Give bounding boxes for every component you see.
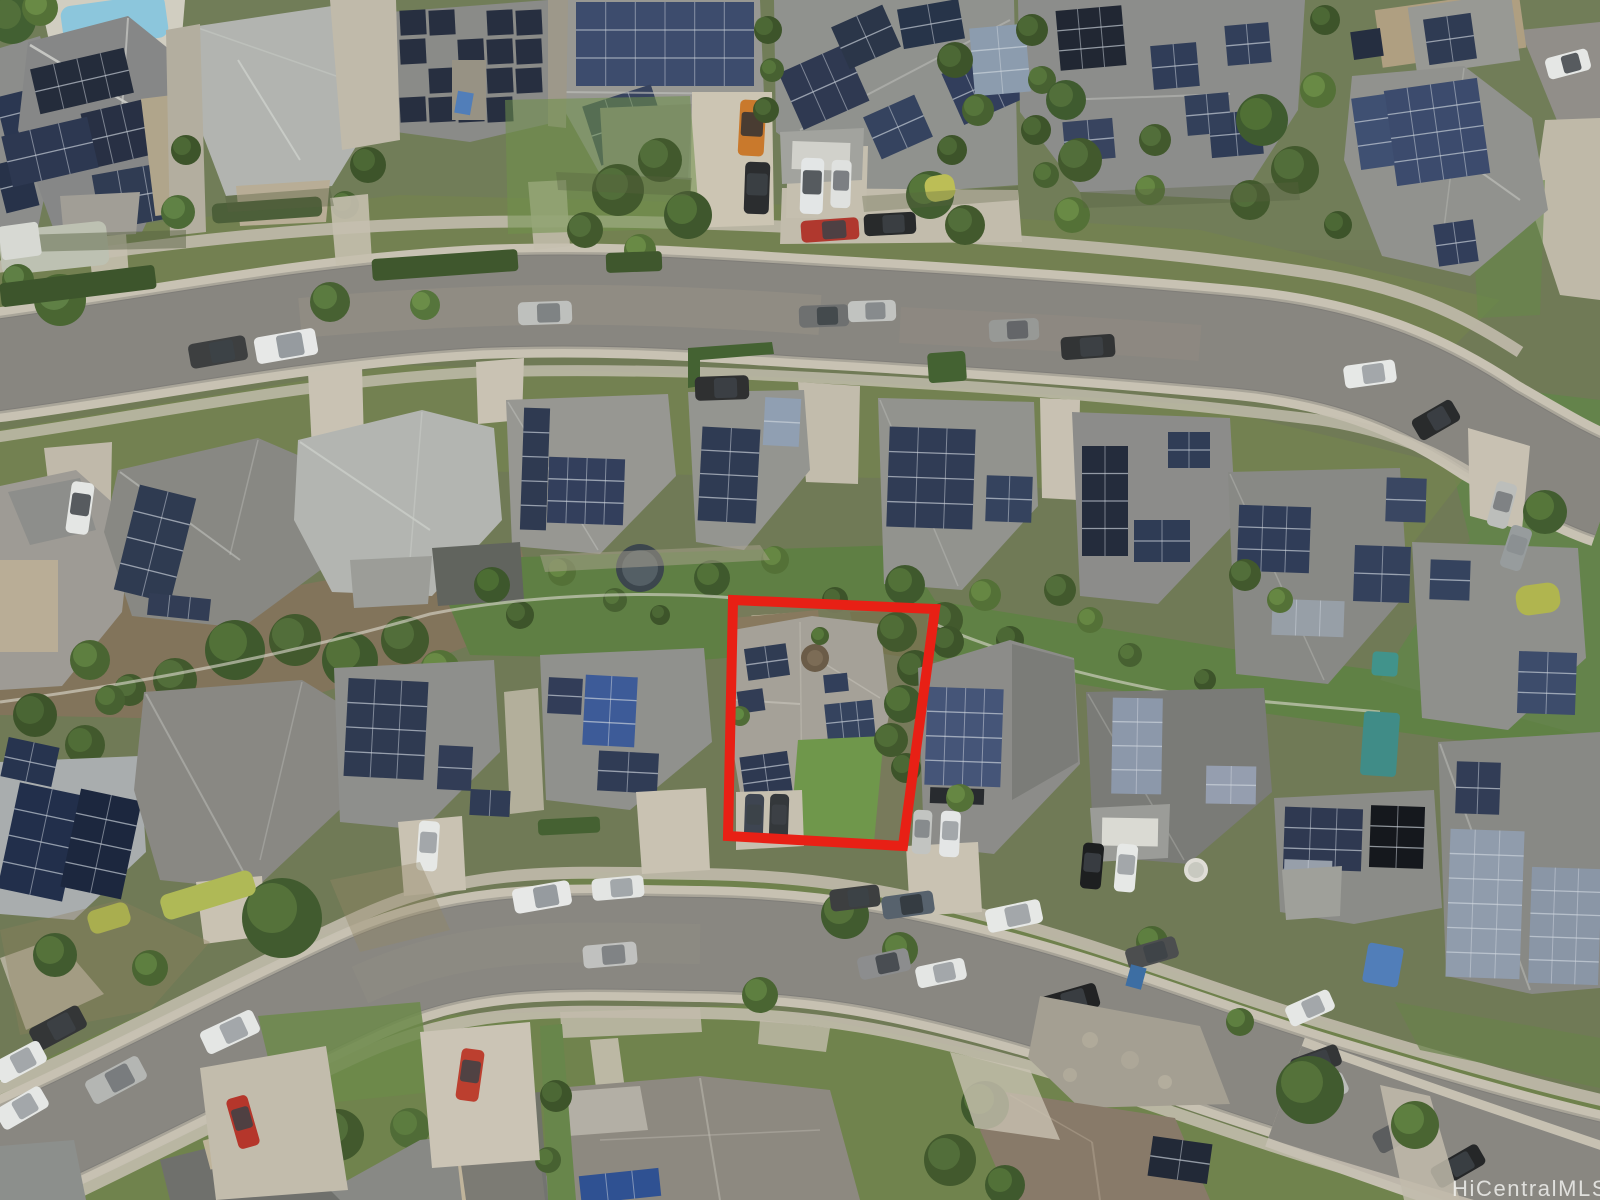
- svg-text:HiCentralMLS: HiCentralMLS: [1452, 1176, 1600, 1200]
